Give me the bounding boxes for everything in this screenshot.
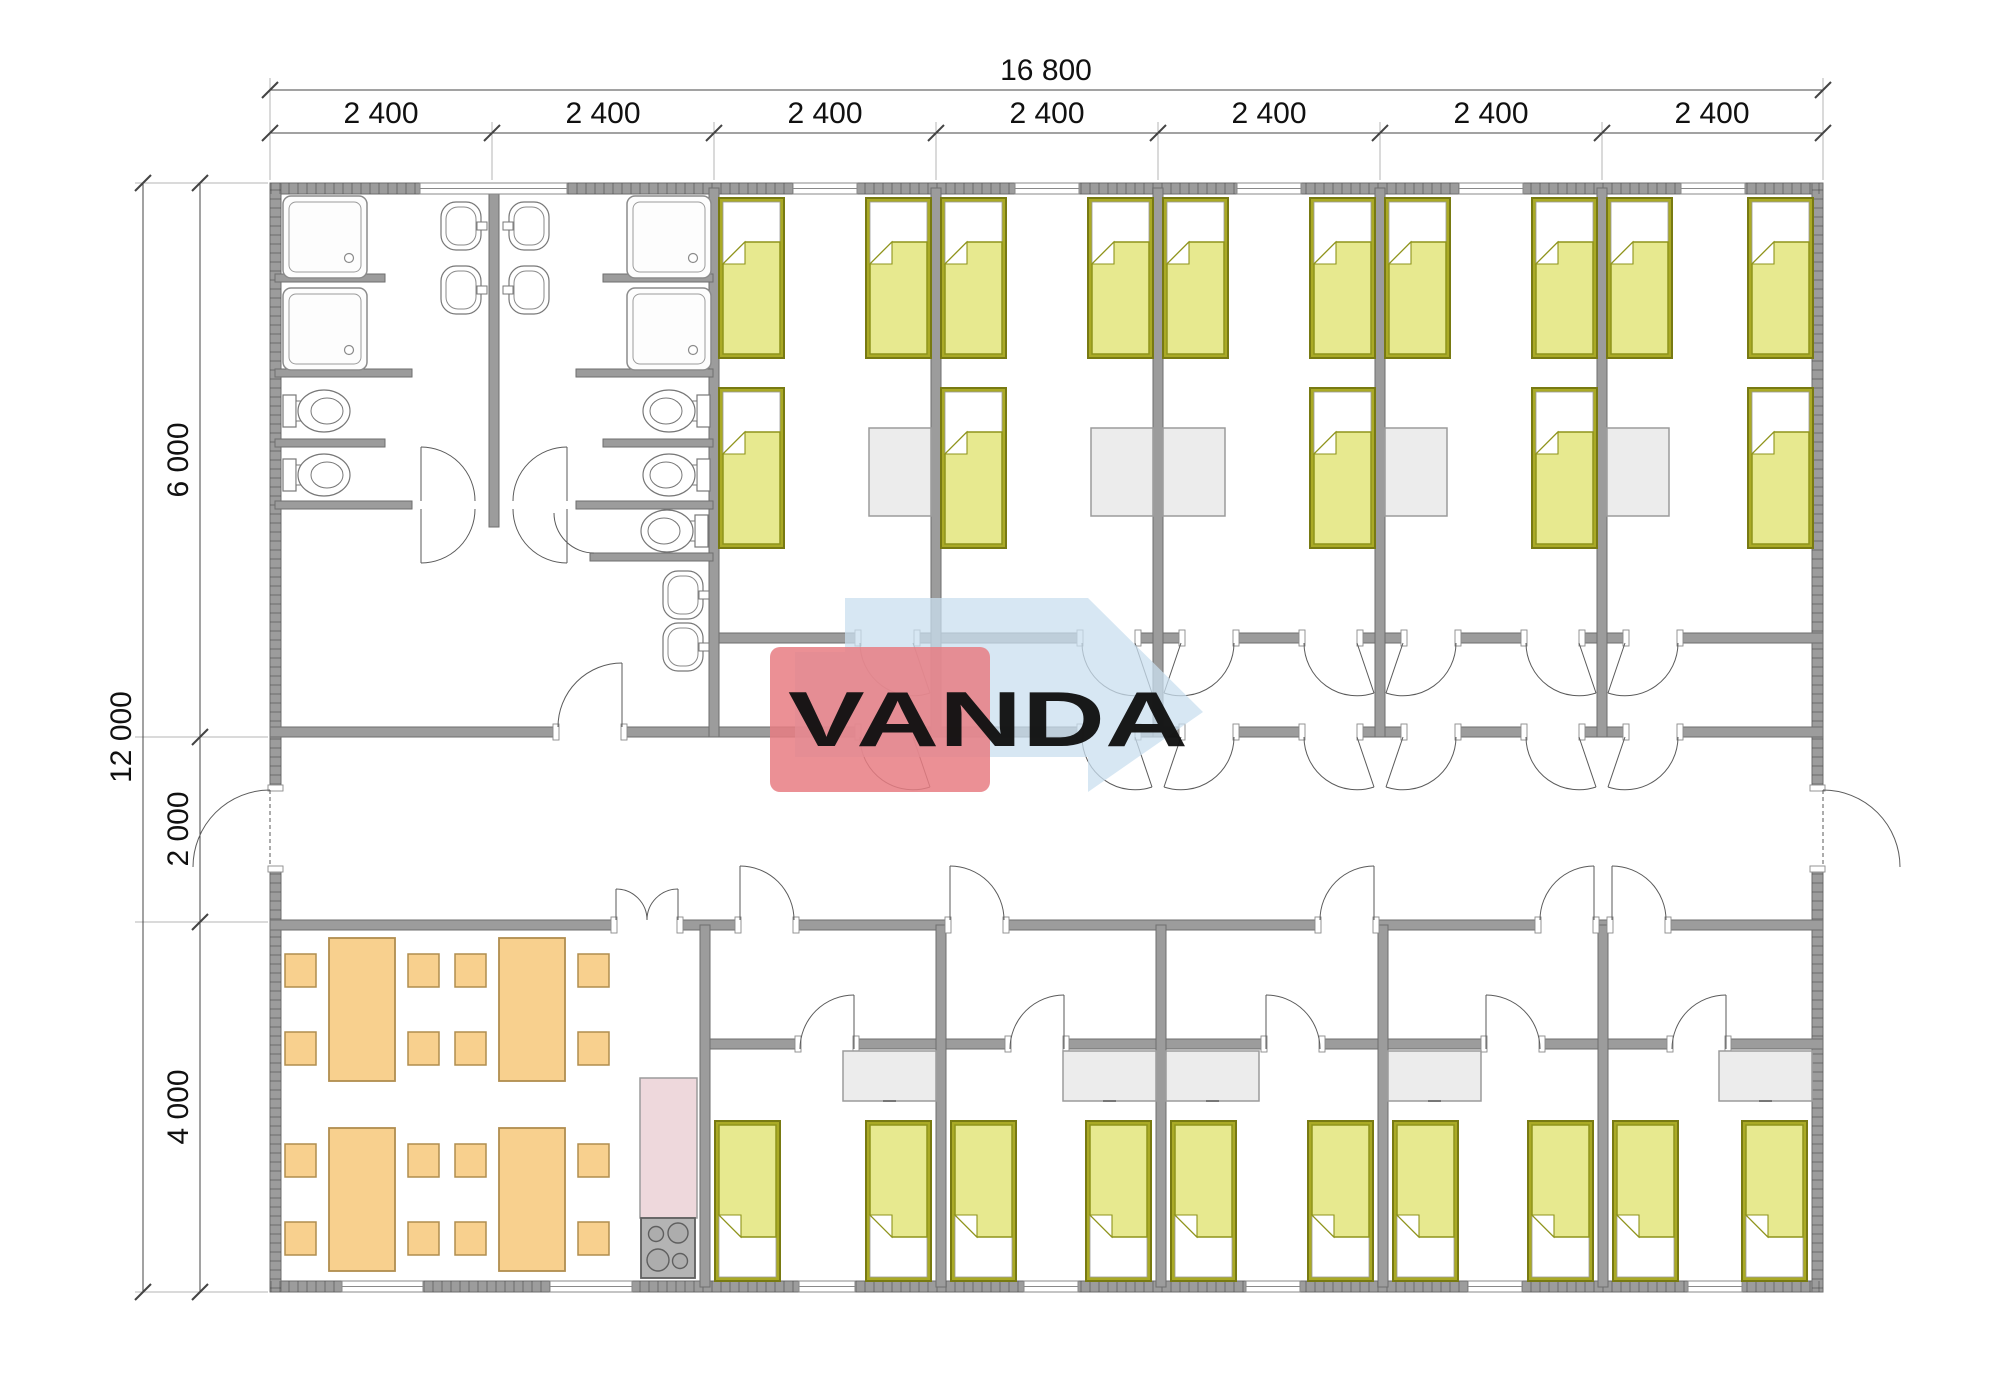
wall-partition [1156,925,1166,1287]
toilet-symbol [641,510,708,552]
sink-symbol [441,266,487,314]
wall-stub [275,501,412,509]
bed [1086,1121,1151,1281]
bed [866,198,931,358]
dim-overall-width: 16 800 [1000,54,1092,87]
nightstand [1091,428,1153,516]
floor-plan-page: 16 800 2 400 2 400 2 400 2 400 2 400 2 4… [0,0,2000,1391]
bottom-bedrooms [715,1051,1812,1281]
wall-partition [1378,925,1388,1287]
toilet-symbol [283,454,350,496]
shower-symbol [627,196,711,278]
bed [1163,198,1228,358]
sink-symbol [663,571,709,619]
wardrobe [1719,1051,1812,1101]
nightstand [1163,428,1225,516]
wardrobe [1388,1051,1481,1101]
shower-symbol [283,196,367,278]
bed [1171,1121,1236,1281]
bed [1310,388,1375,548]
wardrobe [843,1051,936,1101]
bed [719,198,784,358]
toilet-symbol [283,390,350,432]
nightstand [1607,428,1669,516]
nightstand [869,428,931,516]
logo-watermark: VANDA [770,598,1203,792]
dining-table-group [285,938,439,1081]
top-bedrooms [719,198,1813,548]
bed [1742,1121,1807,1281]
dim-module-2: 2 400 [565,97,640,130]
bed [1532,198,1597,358]
bed [1308,1121,1373,1281]
dim-module-3: 2 400 [787,97,862,130]
logo-blue-block [845,598,1088,652]
sink-symbol [663,623,709,671]
wardrobe [1166,1051,1259,1101]
wall-kitchen [700,925,710,1287]
dim-overall-height: 12 000 [105,691,138,783]
dim-module-4: 2 400 [1009,97,1084,130]
dim-vseg-3: 4 000 [162,1069,195,1144]
shower-symbol [627,288,711,370]
bed [866,1121,931,1281]
wall-partition [1597,188,1607,737]
dim-vseg-2: 2 000 [162,791,195,866]
bed [715,1121,780,1281]
sink-symbol [503,202,549,250]
nightstand [1385,428,1447,516]
dim-module-7: 2 400 [1674,97,1749,130]
toilet-symbol [643,390,710,432]
dining-table-group [285,1128,439,1271]
toilet-symbol [643,454,710,496]
sink-symbol [441,202,487,250]
dim-module-1: 2 400 [343,97,418,130]
stove [641,1218,695,1278]
floor-plan-svg: 16 800 2 400 2 400 2 400 2 400 2 400 2 4… [0,0,2000,1391]
bed [1532,388,1597,548]
dim-vseg-1: 6 000 [162,422,195,497]
wall-partition [936,925,946,1287]
bed [951,1121,1016,1281]
wall-stub [590,553,713,561]
dining-room [285,938,697,1278]
dim-module-5: 2 400 [1231,97,1306,130]
bed [1748,198,1813,358]
bed [1528,1121,1593,1281]
dim-module-6: 2 400 [1453,97,1528,130]
bed [1393,1121,1458,1281]
shower-symbol [283,288,367,370]
wall-stub [576,501,713,509]
wall-stub [603,439,713,447]
bed [1613,1121,1678,1281]
bed [941,198,1006,358]
bed [1310,198,1375,358]
sink-symbol [503,266,549,314]
wall-partition [1598,925,1608,1287]
wardrobe [1063,1051,1156,1101]
dining-table-group [455,938,609,1081]
logo-text: VANDA [788,675,1188,763]
bed [941,388,1006,548]
wall-bathroom-center [489,188,499,527]
bed [1385,198,1450,358]
wall-partition [1375,188,1385,737]
bed [1607,198,1672,358]
wall-partition [1153,188,1163,737]
kitchen-counter [640,1078,697,1218]
bed [719,388,784,548]
wall-stub [275,439,385,447]
bed [1088,198,1153,358]
dining-table-group [455,1128,609,1271]
bed [1748,388,1813,548]
